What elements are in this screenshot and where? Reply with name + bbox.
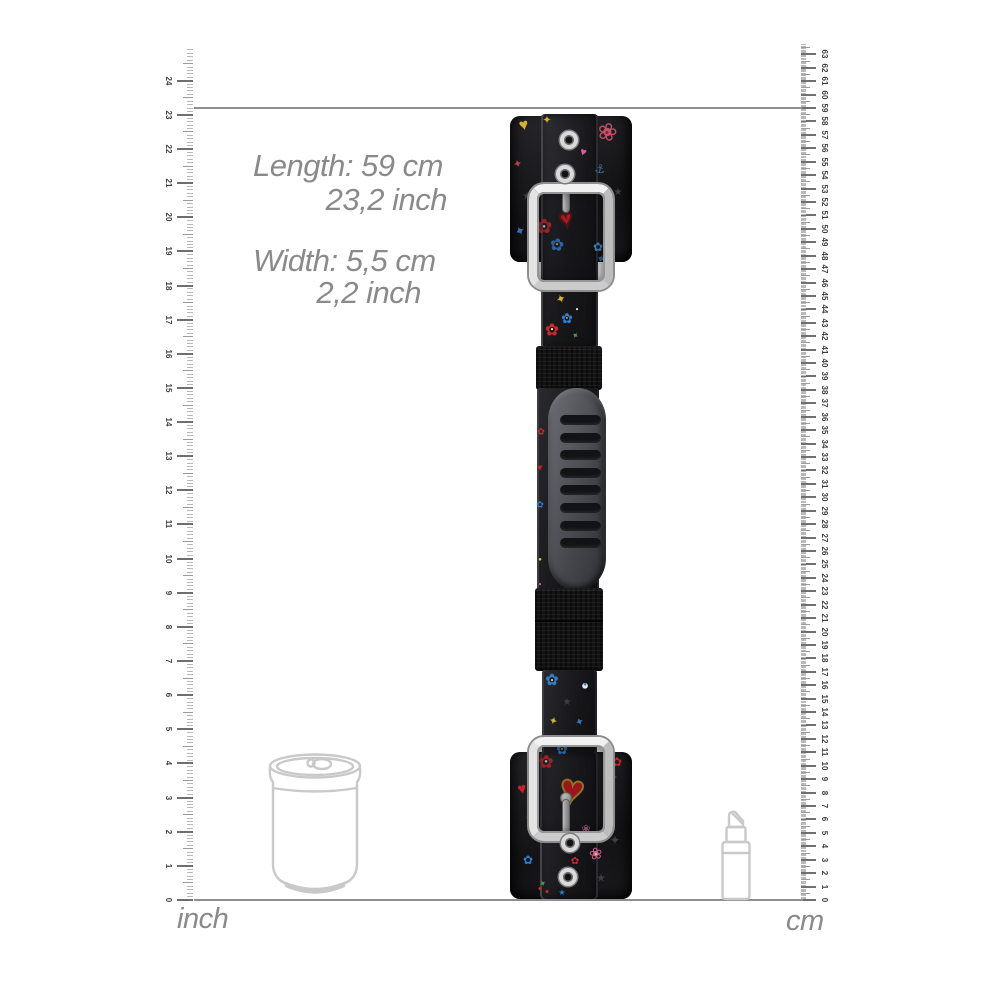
ruler-tick [801, 153, 806, 154]
ruler-tick [187, 261, 193, 262]
ruler-tick [801, 156, 806, 157]
ruler-tick [187, 469, 193, 470]
ruler-tick [187, 241, 193, 242]
ruler-tick [801, 771, 806, 772]
carry-handle [548, 388, 606, 590]
ruler-tick [187, 275, 193, 276]
ruler-tick [801, 389, 816, 391]
ruler-number: 12 [819, 731, 829, 747]
ruler-tick [187, 766, 193, 767]
ruler-tick [177, 455, 193, 457]
ruler-number: 3 [819, 852, 829, 868]
ruler-tick [801, 56, 806, 57]
ruler-tick [801, 630, 806, 631]
ruler-tick [801, 75, 806, 76]
ruler-tick [187, 152, 193, 153]
length-guide-line [194, 107, 802, 109]
ruler-tick [183, 541, 193, 542]
ruler-number: 43 [819, 315, 829, 331]
ruler-tick [801, 349, 816, 351]
ruler-tick [801, 533, 806, 534]
ruler-tick [801, 195, 810, 196]
ruler-tick [187, 722, 193, 723]
ruler-tick [801, 736, 806, 737]
ruler-tick [801, 495, 806, 496]
ruler-tick [801, 235, 810, 236]
ruler-tick [801, 717, 806, 718]
ruler-tick [801, 576, 806, 577]
ruler-tick [177, 865, 193, 867]
ruler-tick [801, 867, 806, 868]
ruler-tick [183, 678, 193, 679]
ruler-tick [801, 461, 806, 462]
ruler-tick [801, 721, 806, 722]
ruler-tick [187, 104, 193, 105]
ruler-tick [801, 375, 816, 377]
ruler-tick [801, 406, 806, 407]
bottom-grommet-2 [559, 868, 577, 886]
ruler-tick [187, 579, 193, 580]
ruler-tick [187, 237, 193, 238]
ruler-tick [801, 345, 806, 346]
ruler-tick [801, 788, 806, 789]
ruler-tick [801, 808, 806, 809]
ruler-tick [801, 816, 806, 817]
ruler-tick [801, 845, 816, 847]
ruler-tick [187, 159, 193, 160]
ruler-tick [801, 414, 806, 415]
ruler-tick [801, 755, 806, 756]
ruler-tick [801, 44, 806, 45]
ruler-tick [187, 466, 193, 467]
ruler-tick [801, 380, 806, 381]
ruler-tick [801, 722, 806, 723]
ruler-number: 63 [819, 46, 829, 62]
ruler-tick [801, 463, 810, 464]
ruler-tick [801, 832, 816, 834]
ruler-tick [801, 826, 810, 827]
ruler-tick [183, 882, 193, 883]
ruler-tick [801, 442, 806, 443]
ruler-tick [187, 210, 193, 211]
ruler-tick [801, 402, 816, 404]
ruler-tick [801, 666, 806, 667]
width-inch-text: 2,2 inch [253, 277, 421, 310]
ruler-tick [801, 397, 806, 398]
ruler-tick [187, 326, 193, 327]
ruler-tick [801, 74, 810, 75]
ruler-tick [187, 879, 193, 880]
ruler-tick [801, 611, 810, 612]
ruler-tick [801, 482, 806, 483]
ruler-tick [801, 848, 806, 849]
ruler-tick [187, 384, 193, 385]
ruler-number: 7 [163, 653, 173, 669]
ruler-tick [801, 557, 810, 558]
ruler-tick [801, 246, 806, 247]
ruler-tick [183, 609, 193, 610]
ruler-tick [801, 218, 806, 219]
ruler-number: 18 [163, 278, 173, 294]
ruler-tick [177, 592, 193, 594]
ruler-tick [187, 821, 193, 822]
ruler-tick [183, 336, 193, 337]
ruler-tick [801, 365, 806, 366]
ruler-tick [187, 828, 193, 829]
ruler-tick [801, 116, 806, 117]
ruler-tick [801, 110, 806, 111]
ruler-tick [801, 303, 806, 304]
ruler-tick [187, 94, 193, 95]
ruler-tick [187, 640, 193, 641]
ruler-number: 17 [163, 312, 173, 328]
ruler-tick [801, 651, 810, 652]
ruler-tick [801, 765, 816, 767]
ruler-tick [801, 550, 816, 552]
ruler-tick [801, 859, 816, 861]
ruler-number: 31 [819, 476, 829, 492]
ruler-tick [801, 835, 806, 836]
ruler-tick [801, 328, 806, 329]
ruler-tick [187, 432, 193, 433]
handle-rib [560, 433, 601, 443]
ruler-tick [801, 777, 806, 778]
ruler-tick [801, 271, 806, 272]
ruler-tick [801, 764, 806, 765]
ruler-tick [183, 370, 193, 371]
ruler-tick [801, 866, 810, 867]
ruler-tick [187, 449, 193, 450]
ruler-tick [801, 710, 806, 711]
ruler-tick [801, 181, 810, 182]
ruler-tick [801, 555, 806, 556]
ruler-tick [187, 411, 193, 412]
ruler-tick [801, 320, 806, 321]
ruler-tick [801, 205, 806, 206]
ruler-tick [187, 664, 193, 665]
ruler-tick [187, 841, 193, 842]
ruler-tick [187, 278, 193, 279]
ruler-number: 19 [163, 243, 173, 259]
ruler-tick [801, 650, 806, 651]
ruler-tick [177, 182, 193, 184]
ruler-tick [801, 662, 806, 663]
ruler-tick [801, 446, 806, 447]
ruler-tick [801, 184, 806, 185]
ruler-tick [187, 551, 193, 552]
ruler-number: 13 [163, 448, 173, 464]
ruler-tick [801, 80, 816, 82]
ruler-tick [183, 780, 193, 781]
ruler-tick [801, 657, 806, 658]
ruler-tick [801, 529, 806, 530]
ruler-tick [801, 567, 806, 568]
ruler-tick [801, 879, 810, 880]
ruler-tick [801, 593, 806, 594]
ruler-number: 41 [819, 342, 829, 358]
ruler-tick [801, 708, 806, 709]
ruler-tick [187, 531, 193, 532]
ruler-tick [801, 262, 810, 263]
ruler-tick [187, 169, 193, 170]
ruler-tick [801, 473, 806, 474]
ruler-tick [801, 248, 810, 249]
ruler-tick [801, 744, 806, 745]
ruler-tick [801, 295, 816, 297]
print-motif: ● [594, 853, 597, 858]
ruler-number: 20 [163, 209, 173, 225]
ruler-tick [801, 718, 810, 719]
ruler-tick [801, 505, 806, 506]
ruler-tick [187, 49, 193, 50]
ruler-tick [801, 705, 810, 706]
ruler-tick [801, 751, 816, 753]
ruler-tick [801, 66, 806, 67]
ruler-tick [187, 350, 193, 351]
ruler-tick [801, 277, 806, 278]
ruler-tick [801, 367, 806, 368]
ruler-tick [187, 504, 193, 505]
ruler-tick [801, 481, 806, 482]
ruler-tick [801, 614, 806, 615]
ruler-tick [801, 745, 810, 746]
print-motif: ✿ [612, 756, 622, 768]
ruler-tick [187, 521, 193, 522]
ruler-tick [801, 635, 806, 636]
ruler-tick [801, 510, 816, 512]
ruler-tick [801, 91, 806, 92]
ruler-tick [801, 560, 806, 561]
top-grommet-1 [560, 131, 578, 149]
ruler-tick [801, 691, 810, 692]
print-motif: ● [583, 682, 587, 688]
ruler-tick [801, 228, 816, 230]
print-motif: ★ [563, 698, 572, 708]
ruler-tick [187, 295, 193, 296]
ruler-tick [801, 796, 806, 797]
ruler-tick [801, 232, 806, 233]
ruler-number: 21 [163, 175, 173, 191]
ruler-tick [187, 172, 193, 173]
ruler-tick [801, 585, 806, 586]
ruler-tick [183, 97, 193, 98]
ruler-tick [801, 493, 806, 494]
ruler-tick [801, 77, 806, 78]
ruler-tick [801, 252, 806, 253]
ruler-tick [187, 463, 193, 464]
ruler-tick [187, 777, 193, 778]
ruler-tick [801, 201, 816, 203]
ruler-tick [801, 750, 806, 751]
ruler-tick [801, 439, 806, 440]
ruler-tick [801, 133, 806, 134]
ruler-tick [187, 176, 193, 177]
ruler-tick [801, 99, 806, 100]
ruler-tick [801, 661, 806, 662]
ruler-tick [801, 273, 806, 274]
ruler-tick [801, 282, 816, 284]
ruler-tick [801, 603, 806, 604]
ruler-tick [183, 63, 193, 64]
ruler-tick [801, 467, 806, 468]
ruler-tick [801, 720, 806, 721]
ruler-tick [801, 316, 810, 317]
ruler-tick [801, 392, 806, 393]
ruler-tick [801, 126, 806, 127]
ruler-tick [801, 372, 806, 373]
ruler-tick [801, 114, 810, 115]
ruler-tick [801, 132, 806, 133]
ruler-tick [801, 836, 806, 837]
ruler-tick [801, 321, 806, 322]
ruler-tick [801, 737, 806, 738]
handle-rib [560, 468, 601, 478]
ruler-tick [801, 436, 810, 437]
ruler-tick [801, 857, 806, 858]
ruler-tick [801, 526, 806, 527]
ruler-tick [801, 286, 806, 287]
ruler-tick [801, 456, 816, 458]
ruler-tick [801, 462, 806, 463]
ruler-tick [187, 73, 193, 74]
print-motif: ● [550, 328, 553, 333]
ruler-tick [801, 67, 816, 69]
ruler-tick [187, 807, 193, 808]
ruler-tick [187, 145, 193, 146]
ruler-tick [801, 266, 806, 267]
ruler-tick [801, 730, 806, 731]
ruler-number: 0 [163, 892, 173, 908]
ruler-tick [187, 637, 193, 638]
width-cm-text: Width: 5,5 cm [253, 245, 436, 278]
ruler-tick [801, 120, 806, 121]
ruler-tick [187, 408, 193, 409]
ruler-tick [801, 197, 806, 198]
ruler-tick [187, 756, 193, 757]
ruler-tick [801, 616, 806, 617]
ruler-tick [801, 222, 810, 223]
ruler-tick [187, 203, 193, 204]
ruler-tick [801, 706, 806, 707]
print-motif: ✿ [523, 854, 533, 866]
bottom-buckle [529, 737, 613, 841]
ruler-tick [801, 424, 806, 425]
print-motif: ✿ [537, 428, 545, 437]
ruler-tick [801, 208, 810, 209]
ruler-tick [177, 80, 193, 82]
ruler-tick [187, 708, 193, 709]
print-motif: ✦ [542, 116, 551, 127]
ruler-tick [801, 838, 806, 839]
ruler-tick [187, 585, 193, 586]
length-inch-text: 23,2 inch [253, 184, 447, 217]
ruler-tick [801, 314, 806, 315]
handle-rib [560, 503, 601, 513]
ruler-tick [801, 682, 806, 683]
ruler-tick [187, 684, 193, 685]
length-cm-text: Length: 59 cm [253, 150, 443, 183]
handle-rib [560, 415, 601, 425]
ruler-tick [801, 373, 806, 374]
ruler-tick [801, 559, 806, 560]
ruler-tick [187, 606, 193, 607]
ruler-tick [801, 509, 806, 510]
ruler-tick [801, 895, 806, 896]
ruler-tick [801, 669, 806, 670]
ruler-tick [801, 584, 810, 585]
ruler-tick [801, 169, 806, 170]
lipstick-icon [716, 810, 756, 902]
ruler-tick [801, 678, 810, 679]
ruler-tick [801, 875, 806, 876]
ruler-tick [801, 171, 806, 172]
print-motif: ● [550, 679, 553, 684]
ruler-tick [801, 818, 806, 819]
ruler-tick [187, 445, 193, 446]
ruler-tick [187, 56, 193, 57]
ruler-tick [801, 231, 806, 232]
ruler-tick [187, 77, 193, 78]
ruler-tick [801, 204, 806, 205]
ruler-tick [801, 459, 806, 460]
ruler-tick [801, 254, 806, 255]
ruler-tick [801, 759, 810, 760]
ruler-tick [801, 393, 806, 394]
ruler-tick [187, 719, 193, 720]
ruler-tick [801, 305, 806, 306]
ruler-tick [801, 748, 806, 749]
ruler-tick [801, 140, 806, 141]
ruler-tick [187, 254, 193, 255]
ruler-tick [187, 565, 193, 566]
print-motif: ✿ [571, 857, 579, 867]
ruler-tick [801, 694, 806, 695]
ruler-tick [801, 746, 806, 747]
ruler-tick [187, 698, 193, 699]
ruler-tick [801, 548, 806, 549]
ruler-tick [801, 137, 806, 138]
ruler-tick [801, 193, 806, 194]
ruler-tick [801, 299, 806, 300]
ruler-tick [801, 741, 806, 742]
ruler-tick [187, 835, 193, 836]
ruler-tick [801, 486, 806, 487]
ruler-tick [801, 789, 806, 790]
ruler-tick [183, 268, 193, 269]
ruler-tick [187, 773, 193, 774]
ruler-tick [177, 421, 193, 423]
ruler-tick [801, 865, 806, 866]
ruler-tick [801, 78, 806, 79]
ruler-tick [801, 334, 806, 335]
ruler-tick [801, 663, 806, 664]
ruler-tick [801, 886, 816, 888]
ruler-tick [801, 278, 806, 279]
ruler-tick [187, 852, 193, 853]
bottom-grommet-1 [561, 834, 579, 852]
ruler-tick [801, 187, 806, 188]
print-motif: ● [605, 130, 609, 137]
ruler-tick [801, 670, 806, 671]
ruler-tick [187, 725, 193, 726]
ruler-tick [801, 117, 806, 118]
ruler-tick [801, 805, 816, 807]
ruler-tick [187, 179, 193, 180]
ruler-tick [801, 590, 816, 592]
ruler-tick [801, 572, 806, 573]
ruler-tick [187, 736, 193, 737]
ruler-tick [801, 420, 806, 421]
